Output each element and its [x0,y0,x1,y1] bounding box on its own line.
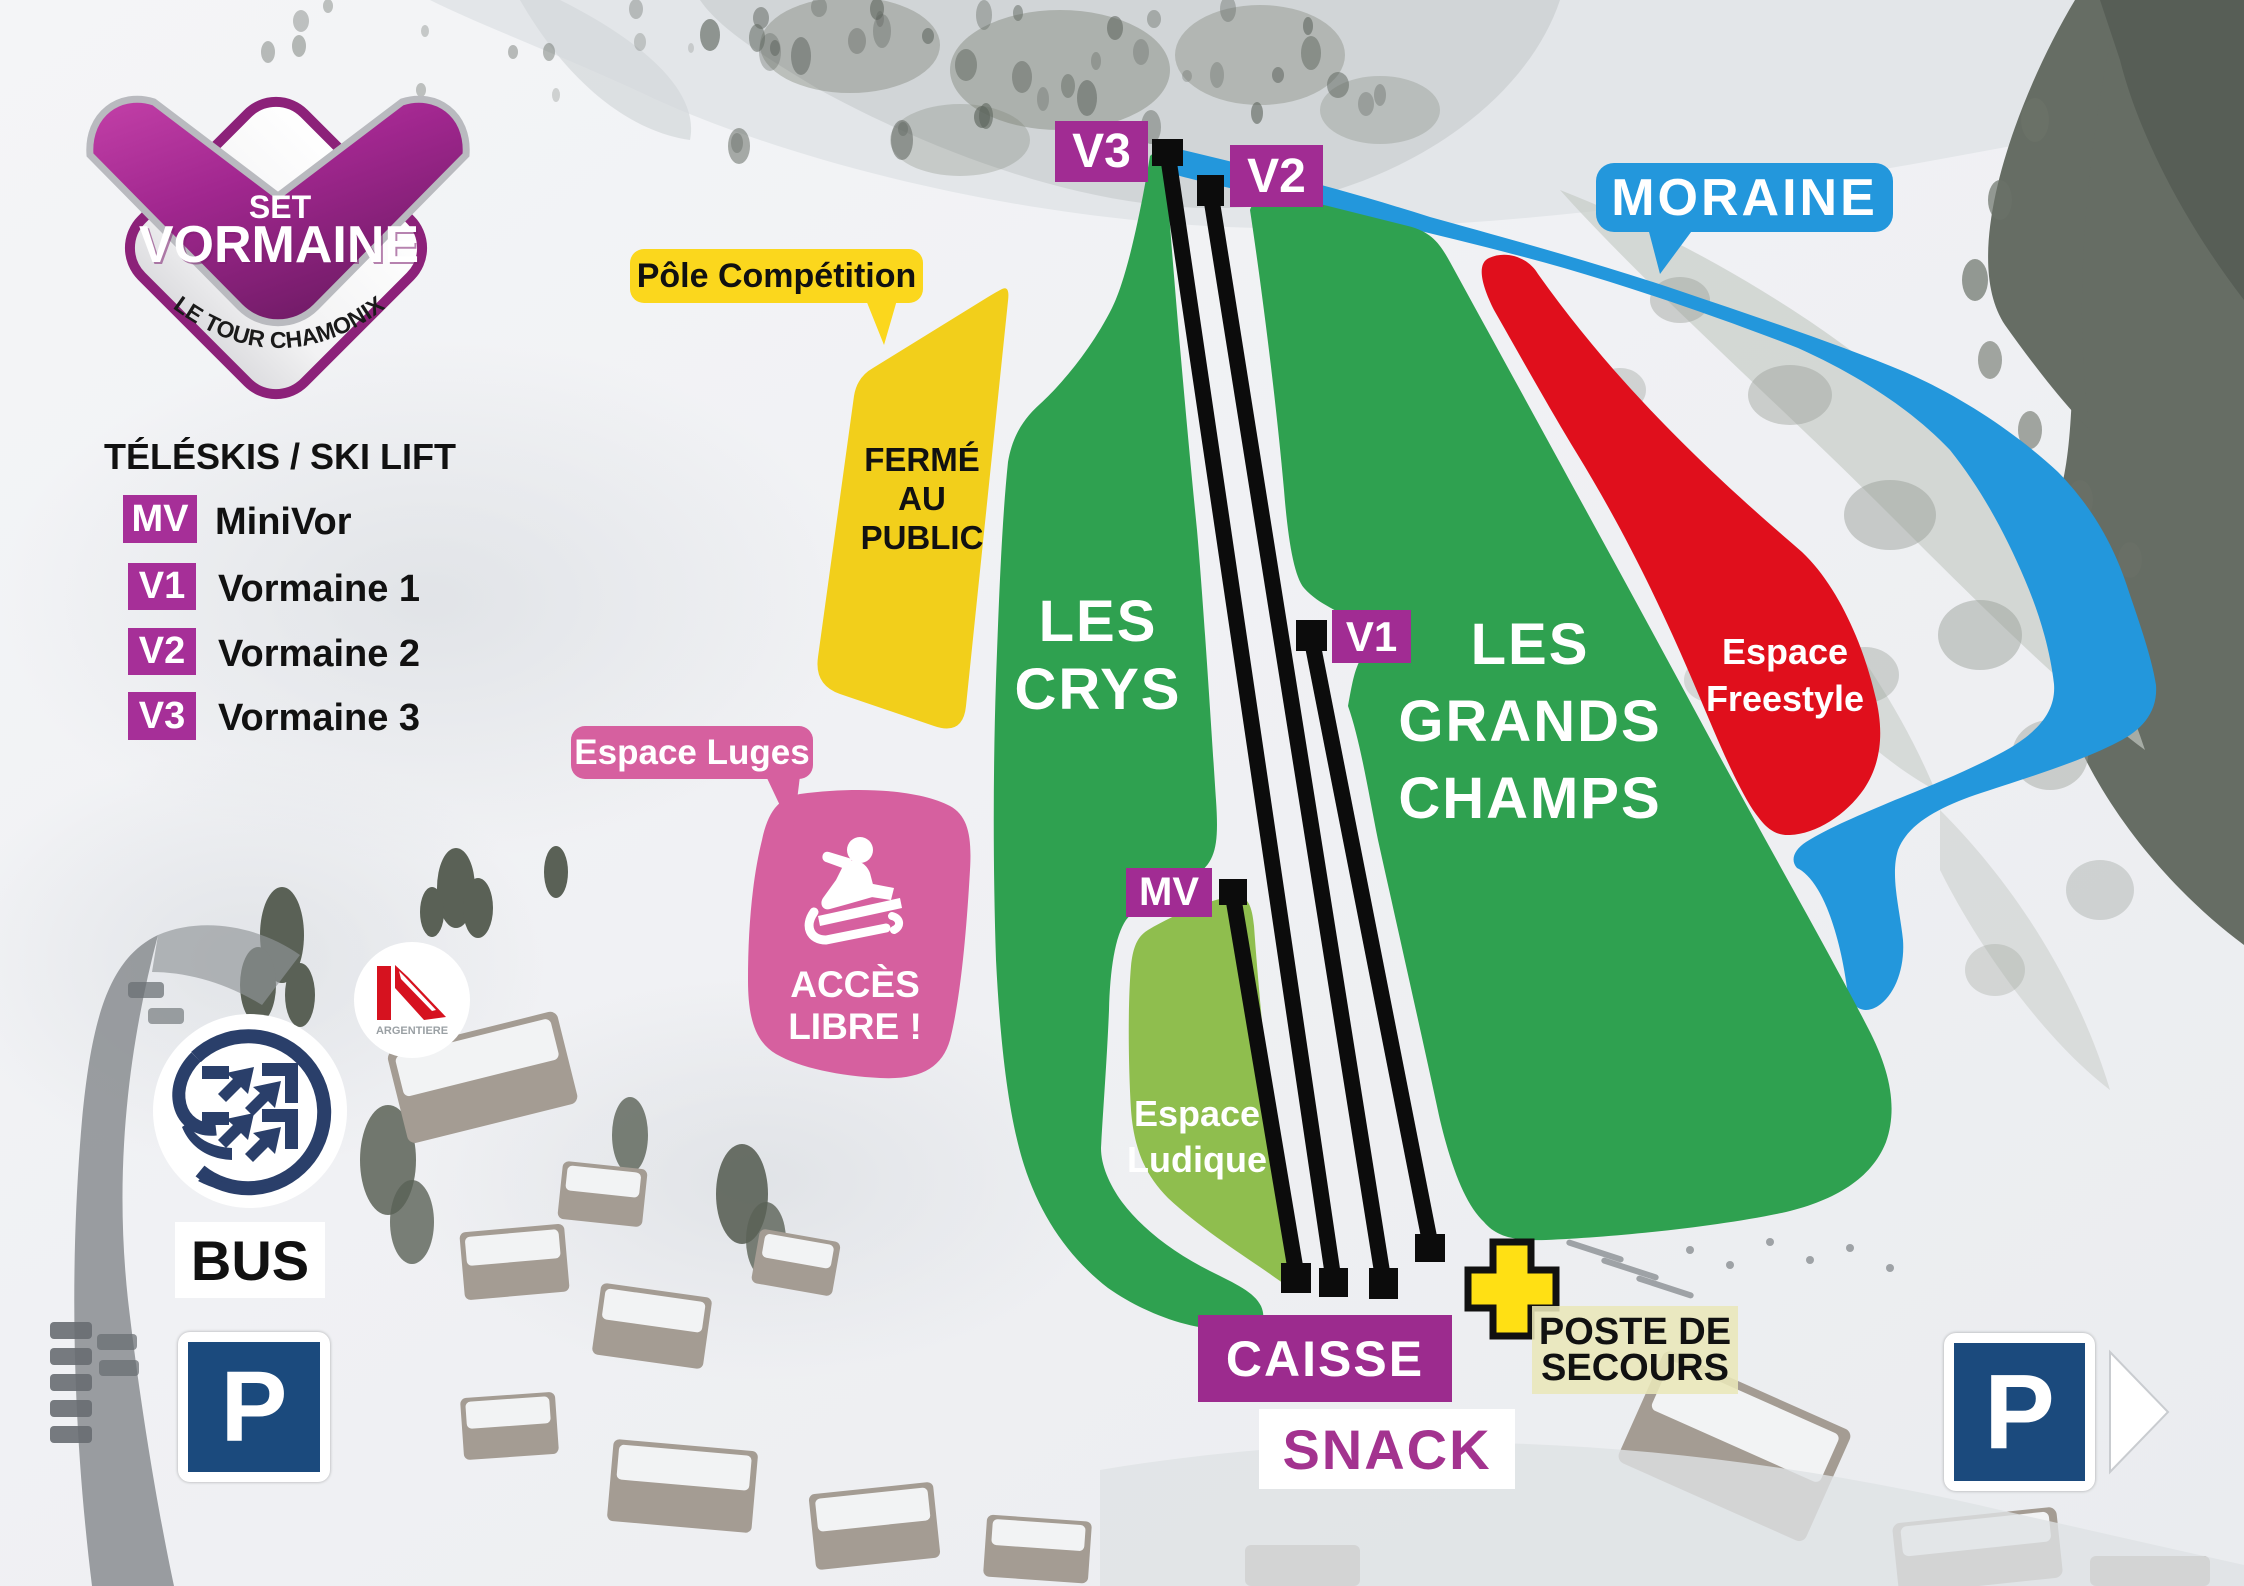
svg-text:VORMAINE: VORMAINE [139,216,419,274]
svg-text:ARGENTIERE: ARGENTIERE [376,1025,448,1037]
